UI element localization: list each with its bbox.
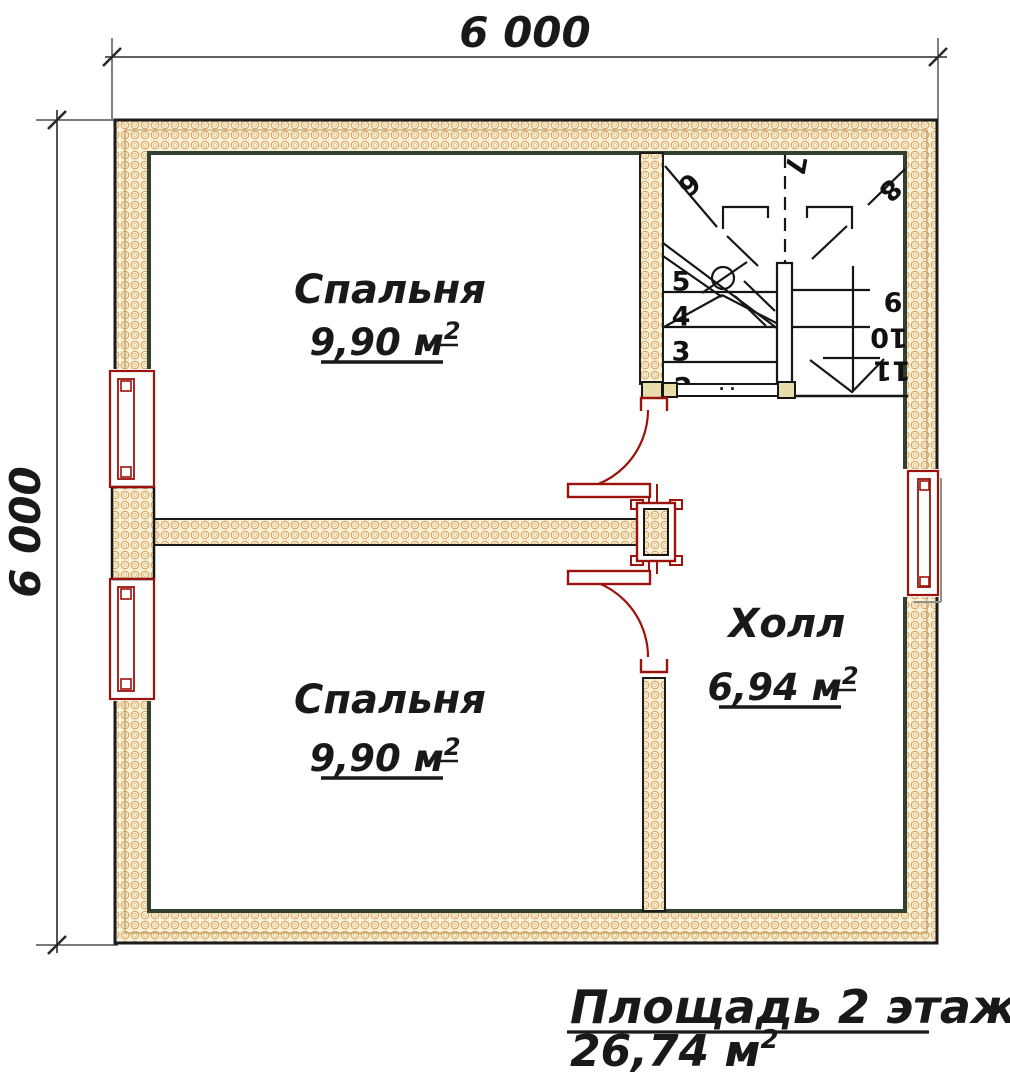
partition-horizontal <box>149 519 640 545</box>
handrail-post-right <box>778 382 795 398</box>
handrail-post-left-b <box>663 383 677 397</box>
step-number-10: 10 <box>870 322 908 353</box>
bedroom-top-area: 9,90 м2 <box>309 317 460 364</box>
step-number-8: 8 <box>872 172 907 207</box>
bedroom-bottom-name: Спальня <box>294 677 486 723</box>
step-number-11: 11 <box>873 355 911 386</box>
bedroom-top-name: Спальня <box>294 267 486 313</box>
footer: Площадь 2 этажа: 26,74 м2 <box>567 980 1010 1077</box>
footer-value: 26,74 м2 <box>570 1025 779 1077</box>
center-post-core <box>644 509 668 555</box>
handrail-post-left-a <box>642 382 662 398</box>
staircase: 2 · · 5 4 3 6 7 8 9 10 11 <box>642 153 911 403</box>
stair-newel-stringer <box>777 263 792 393</box>
dimension-left: 6 000 <box>1 110 118 954</box>
hall-name: Холл <box>726 601 846 647</box>
step-number-6: 6 <box>671 166 705 202</box>
door-top <box>568 410 650 497</box>
door-bottom-leaf <box>568 571 650 584</box>
floor-plan-canvas: 2 · · 5 4 3 6 7 8 9 10 11 <box>0 0 1010 1080</box>
wall-pier-left <box>112 487 154 579</box>
step-number-5: 5 <box>672 267 691 298</box>
partition-vertical-top <box>640 153 663 384</box>
door-top-swing-arc <box>568 410 648 490</box>
door-frame-top-bracket <box>641 398 667 411</box>
hall-area: 6,94 м2 <box>707 662 858 709</box>
bedroom-bottom-area: 9,90 м2 <box>309 733 460 780</box>
dimension-left-label: 6 000 <box>1 466 50 598</box>
handrail-dots: · · <box>719 380 736 398</box>
door-top-leaf <box>568 484 650 497</box>
step-number-3: 3 <box>672 337 691 368</box>
step-number-4: 4 <box>672 302 691 333</box>
partition-vertical-bottom <box>643 678 665 911</box>
door-frame-bottom-bracket <box>641 659 667 672</box>
dimension-top-label: 6 000 <box>459 8 591 57</box>
walk-line-arrow <box>810 359 884 392</box>
door-bottom <box>568 571 650 657</box>
center-post <box>631 500 682 565</box>
floor-plan-svg: 2 · · 5 4 3 6 7 8 9 10 11 <box>0 0 1010 1080</box>
door-bottom-swing-arc <box>568 577 648 657</box>
dimension-top: 6 000 <box>103 8 947 119</box>
stair-handrail: · · <box>642 380 795 398</box>
step-number-9: 9 <box>884 286 903 317</box>
step-number-7: 7 <box>778 153 812 177</box>
